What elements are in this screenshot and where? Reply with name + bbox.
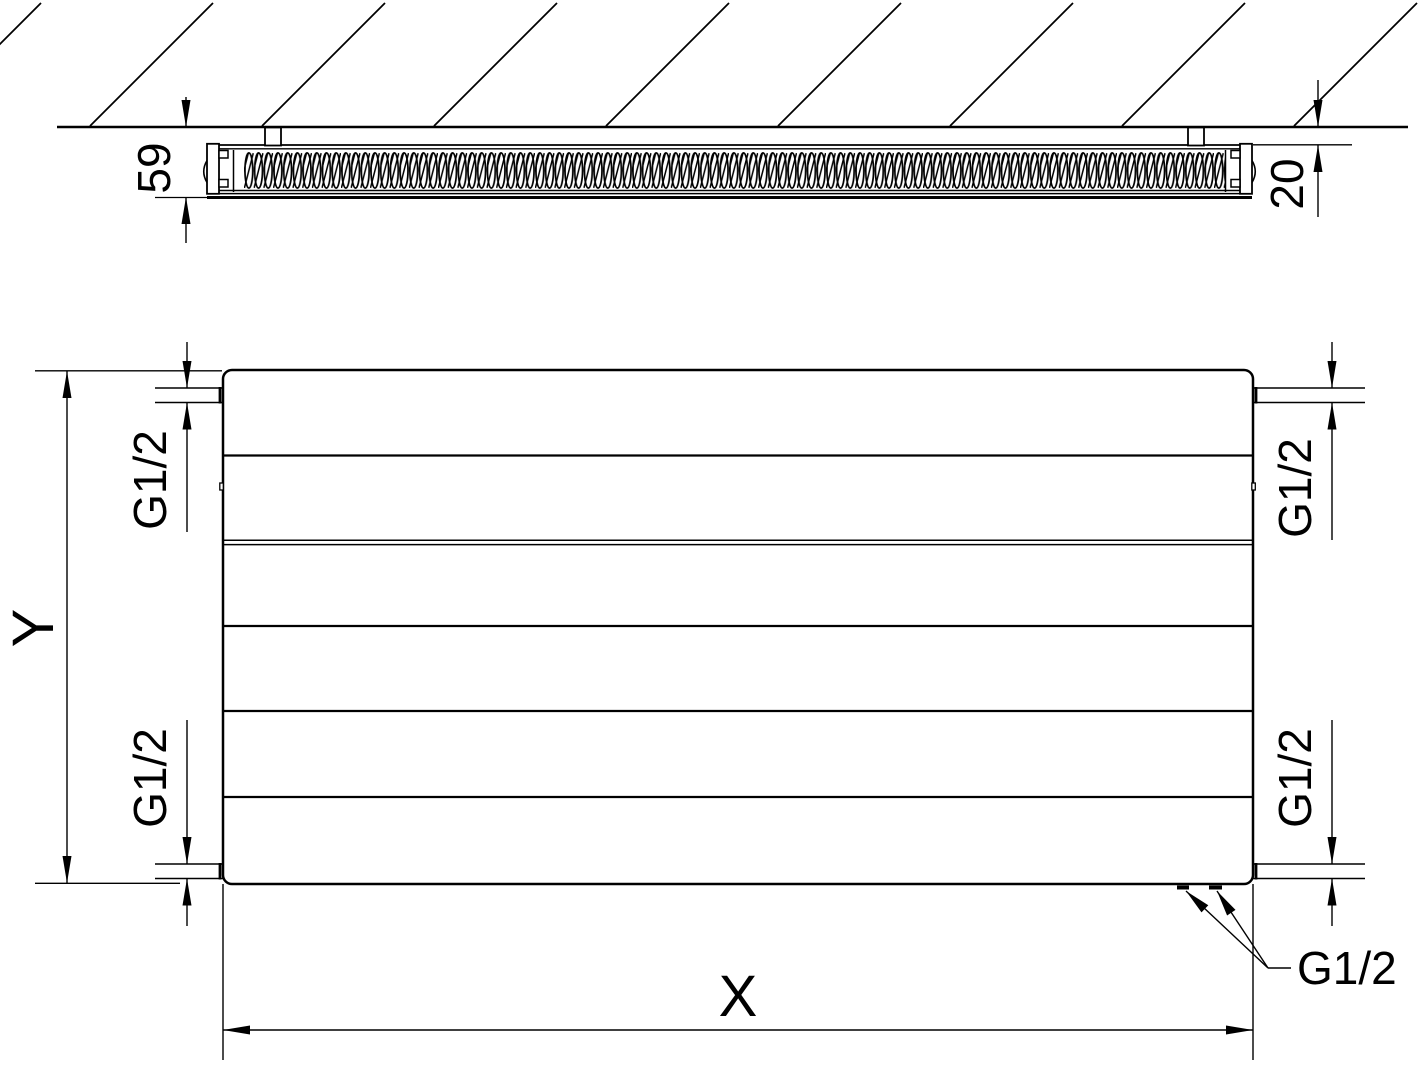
front-view: G1/2 G1/2 G1/2 G1/2 <box>1 342 1397 1060</box>
connection-stub-top-right <box>1253 387 1365 404</box>
radiator-technical-drawing: 59 20 <box>0 0 1427 1067</box>
thread-label-bottom-connections: G1/2 <box>1297 942 1397 994</box>
side-tab-right <box>1252 483 1256 490</box>
bottom-connections-callout: G1/2 <box>1177 886 1397 995</box>
thread-dimension-bottom-right: G1/2 <box>1269 720 1337 926</box>
connection-stub-top-left <box>155 387 223 404</box>
top-section-view: 59 20 <box>0 3 1417 243</box>
thread-label-top-right: G1/2 <box>1269 438 1321 538</box>
thread-label-bottom-right: G1/2 <box>1269 728 1321 828</box>
dimension-wall-clearance-20: 20 <box>1253 80 1352 217</box>
thread-dimension-top-right: G1/2 <box>1269 342 1337 540</box>
wall-hatching <box>0 3 1417 126</box>
dimension-depth-59: 59 <box>128 97 191 243</box>
convector-fins <box>244 152 1226 190</box>
width-label: X <box>719 964 758 1029</box>
connection-stub-bottom-left <box>155 863 223 880</box>
end-cap-right <box>1226 144 1256 194</box>
radiator-cross-section <box>155 128 1255 198</box>
depth-value: 59 <box>128 142 180 193</box>
wall-clearance-value: 20 <box>1261 158 1313 209</box>
wall-bracket-right <box>1188 128 1204 146</box>
dimension-width-x: X <box>223 884 1253 1060</box>
dimension-height-y: Y <box>1 371 222 884</box>
side-tab-left <box>220 483 224 490</box>
wall-bracket-left <box>265 128 281 146</box>
thread-dimension-bottom-left: G1/2 <box>124 720 192 926</box>
thread-label-bottom-left: G1/2 <box>124 728 176 828</box>
thread-label-top-left: G1/2 <box>124 430 176 530</box>
end-cap-left <box>204 144 234 194</box>
connection-stub-bottom-right <box>1253 863 1365 880</box>
height-label: Y <box>1 609 66 648</box>
